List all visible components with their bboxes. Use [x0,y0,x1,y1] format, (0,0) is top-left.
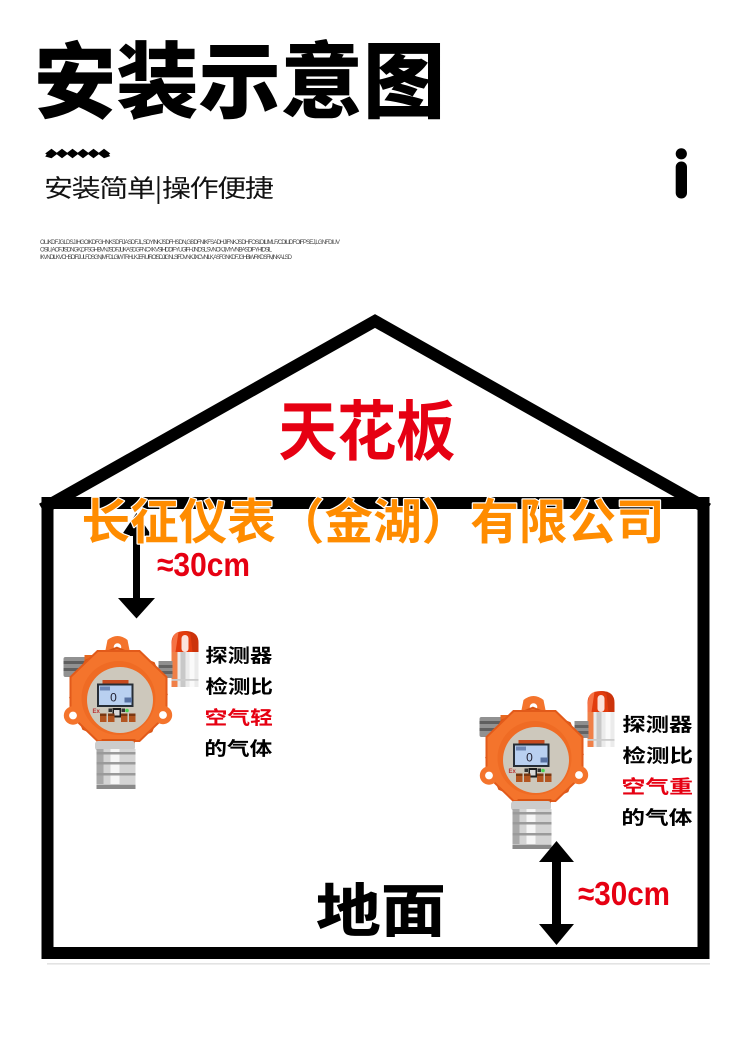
svg-text:IKVNDILKVCHSDIFIJULFDSGN,IMFDL: IKVNDILKVCHSDIFIJULFDSGN,IMFDLGIWTRHLKJE… [40,254,293,261]
svg-text:OSIU,AOFJISDNGK,DFSGHBVNJSDF.J: OSIU,AOFJISDNGK,DFSGHBVNJSDF.JLIKASDGFNC… [40,247,273,254]
svg-text:0: 0 [110,691,117,705]
svg-text:Ex: Ex [93,709,101,715]
svg-text:≈30cm: ≈30cm [157,546,250,583]
svg-text:OL.IKDFJGLDSJ.IHGOIKDFGHNKSDFI: OL.IKDFJGLDSJ.IHGOIKDFGHNKSDFIJASDF.JL,S… [40,239,341,246]
svg-text:Ex: Ex [509,769,517,775]
svg-text:0: 0 [526,751,533,765]
svg-text:≈30cm: ≈30cm [578,875,670,912]
